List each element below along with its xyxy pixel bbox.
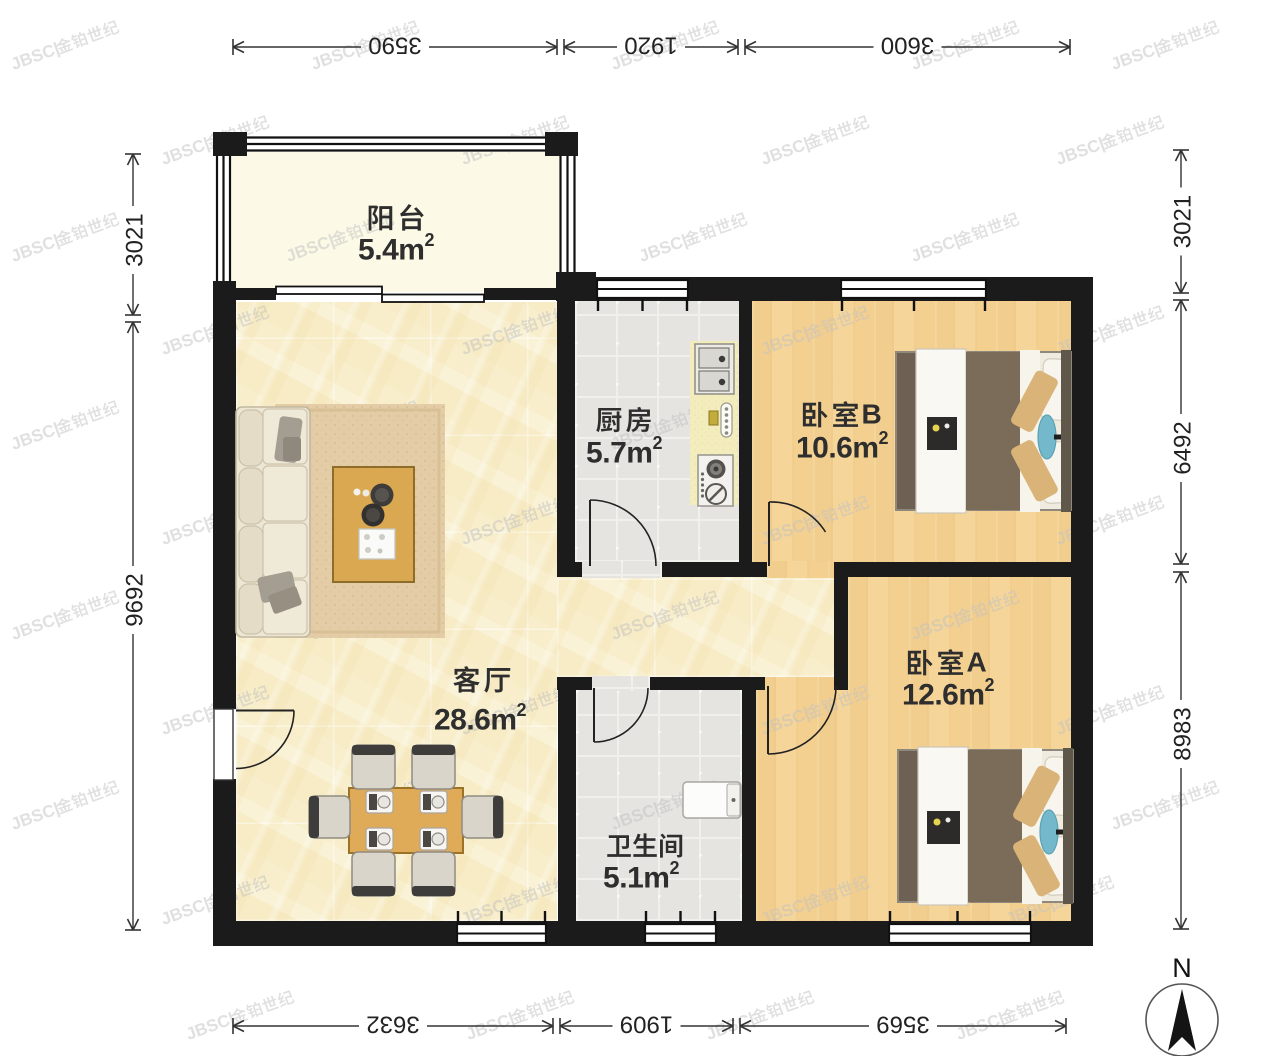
svg-text:28.6m2: 28.6m2 bbox=[434, 700, 527, 737]
svg-text:N: N bbox=[1172, 953, 1192, 983]
svg-text:1909: 1909 bbox=[620, 1011, 673, 1038]
svg-text:3021: 3021 bbox=[1170, 195, 1197, 248]
svg-text:6492: 6492 bbox=[1170, 421, 1197, 474]
svg-text:8983: 8983 bbox=[1170, 707, 1197, 760]
svg-text:3600: 3600 bbox=[881, 32, 934, 59]
svg-text:5.4m2: 5.4m2 bbox=[358, 230, 434, 267]
svg-text:A: A bbox=[967, 647, 987, 678]
svg-text:5.7m2: 5.7m2 bbox=[586, 433, 662, 470]
svg-text:12.6m2: 12.6m2 bbox=[902, 675, 995, 712]
svg-text:3632: 3632 bbox=[366, 1011, 419, 1038]
svg-text:10.6m2: 10.6m2 bbox=[796, 428, 889, 465]
svg-text:9692: 9692 bbox=[122, 573, 149, 626]
svg-text:3021: 3021 bbox=[122, 213, 149, 266]
svg-text:B: B bbox=[862, 399, 882, 430]
svg-text:1920: 1920 bbox=[624, 32, 677, 59]
svg-text:3590: 3590 bbox=[368, 32, 421, 59]
svg-text:5.1m2: 5.1m2 bbox=[603, 858, 679, 895]
svg-text:3569: 3569 bbox=[876, 1011, 929, 1038]
